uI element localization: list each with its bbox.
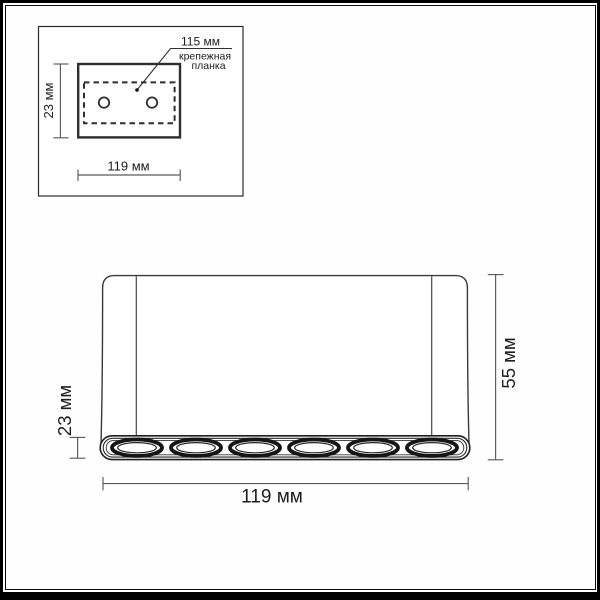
height-dimension: 55 мм — [488, 275, 519, 460]
depth-dimension-label: 23 мм — [54, 385, 75, 436]
product-dimension-diagram: { "colors": { "line": "#2e2e2e", "dim_li… — [0, 0, 600, 600]
depth-dimension: 23 мм — [54, 385, 85, 458]
width-dimension-label: 119 мм — [241, 487, 303, 508]
led-strip-outline — [100, 436, 470, 460]
mounting-hole — [147, 97, 157, 107]
fixture-footprint — [78, 64, 180, 137]
fixture-body — [101, 276, 469, 447]
inset-width-label: 119 мм — [107, 159, 149, 174]
technical-drawing: 115 мм крепежная планка 23 мм 119 мм — [0, 0, 600, 600]
plate-dimension-label: 115 мм — [181, 35, 220, 49]
front-view: 23 мм 55 мм 119 мм — [54, 275, 519, 508]
leader-dot — [135, 88, 139, 92]
width-dimension: 119 мм — [103, 477, 468, 508]
plate-name-label-line2: планка — [191, 60, 225, 72]
inset-height-label: 23 мм — [41, 82, 56, 118]
led-strip — [100, 436, 470, 460]
mounting-hole — [99, 97, 109, 107]
top-view-inset: 115 мм крепежная планка 23 мм 119 мм — [39, 27, 244, 197]
height-dimension-label: 55 мм — [498, 337, 519, 388]
